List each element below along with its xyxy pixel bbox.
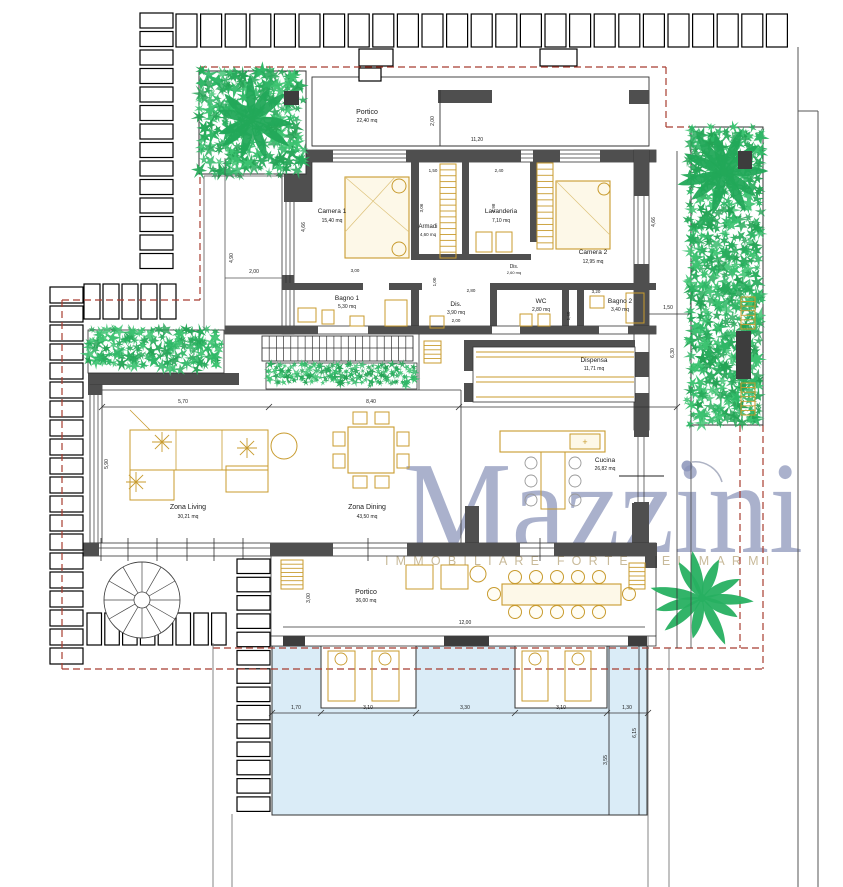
svg-text:3,10: 3,10 [556,705,566,711]
svg-text:36,00 mq: 36,00 mq [356,598,377,604]
svg-text:2,00: 2,00 [249,269,259,275]
svg-text:Cucina: Cucina [595,457,616,464]
svg-text:2,00: 2,00 [430,116,436,126]
svg-text:3,00: 3,00 [351,268,360,273]
svg-text:26,82 mq: 26,82 mq [595,466,616,472]
svg-text:1,50: 1,50 [429,168,438,173]
svg-text:5,70: 5,70 [178,399,188,405]
svg-text:12,95 mq: 12,95 mq [583,259,604,265]
svg-text:Bagno 1: Bagno 1 [335,295,360,302]
svg-text:3,55: 3,55 [603,755,609,765]
svg-text:3,06: 3,06 [419,203,424,212]
svg-text:+: + [582,437,587,447]
svg-text:1,30: 1,30 [622,705,632,711]
svg-text:3,00: 3,00 [306,593,312,603]
svg-text:15,40 mq: 15,40 mq [322,218,343,224]
svg-text:6,15: 6,15 [632,728,638,738]
svg-text:Bagno 2: Bagno 2 [608,298,633,305]
svg-text:Dis.: Dis. [450,301,461,308]
svg-text:5,90: 5,90 [104,459,110,469]
svg-text:2,40: 2,40 [495,168,504,173]
svg-text:Armadi: Armadi [418,224,437,230]
svg-text:2,00: 2,00 [452,318,461,323]
svg-text:22,40 mq: 22,40 mq [357,118,378,124]
svg-text:3,30: 3,30 [460,705,470,711]
svg-text:Camera 2: Camera 2 [579,249,608,256]
svg-text:1,40: 1,40 [566,311,571,320]
svg-text:11,71 mq: 11,71 mq [584,366,605,372]
svg-text:1,70: 1,70 [291,705,301,711]
svg-text:1,00: 1,00 [432,277,437,286]
svg-text:3,20: 3,20 [592,289,601,294]
svg-text:11,20: 11,20 [471,137,483,143]
svg-text:Dispensa: Dispensa [580,357,607,364]
svg-text:1,50: 1,50 [663,305,673,311]
svg-text:Portico: Portico [356,109,378,116]
svg-text:Portico: Portico [355,589,377,596]
svg-text:4,66: 4,66 [651,217,657,227]
svg-text:43,50 mq: 43,50 mq [357,514,378,520]
svg-text:Lavanderia: Lavanderia [485,208,518,215]
svg-text:2,60 mq: 2,60 mq [507,270,521,275]
svg-text:4,60 mq: 4,60 mq [420,232,437,237]
svg-text:7,10 mq: 7,10 mq [492,218,510,224]
svg-text:12,00: 12,00 [459,620,472,626]
svg-text:Zona Living: Zona Living [170,504,206,511]
svg-text:Camera 1: Camera 1 [318,208,347,215]
svg-text:2,80 mq: 2,80 mq [532,307,550,313]
svg-text:Zona Dining: Zona Dining [348,504,386,511]
svg-text:3,10: 3,10 [363,705,373,711]
svg-text:4,66: 4,66 [301,222,307,232]
svg-text:4,90: 4,90 [229,253,235,263]
svg-text:30,21 mq: 30,21 mq [178,514,199,520]
svg-text:WC: WC [536,298,547,305]
svg-text:3,90 mq: 3,90 mq [447,310,465,316]
svg-text:6,30: 6,30 [670,348,676,358]
svg-text:3,40 mq: 3,40 mq [611,307,629,313]
svg-text:5,30 mq: 5,30 mq [338,304,356,310]
svg-text:8,40: 8,40 [366,399,376,405]
svg-text:2,80: 2,80 [467,288,476,293]
